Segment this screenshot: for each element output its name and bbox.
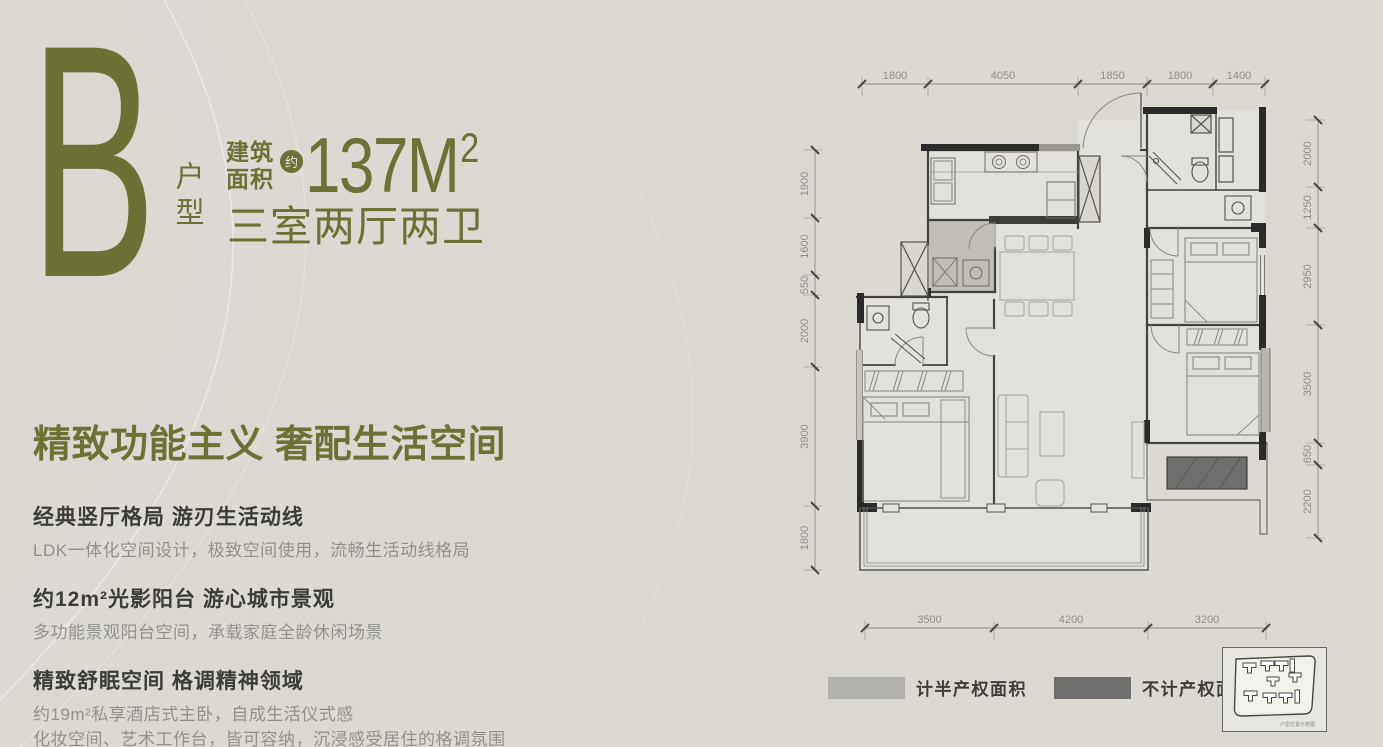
feature-description: 多功能景观阳台空间，承载家庭全龄休闲场景 <box>33 620 593 645</box>
kitchen-window-wall <box>1039 144 1080 151</box>
legend-swatch <box>828 677 905 699</box>
dimension-label: 4200 <box>1059 614 1083 626</box>
dimension-label: 3900 <box>799 424 811 448</box>
feature: 约12m²光影阳台 游心城市景观多功能景观阳台空间，承载家庭全龄休闲场景 <box>33 583 593 645</box>
unit-type-label: 户型 <box>166 161 208 233</box>
floorplan: 1800405018501800140035004200320019001600… <box>795 60 1355 660</box>
area-label-line2: 面积 <box>226 166 274 193</box>
feature: 精致舒眠空间 格调精神领域约19m²私享酒店式主卧，自成生活仪式感化妆空间、艺术… <box>33 665 593 747</box>
dimension-label: 1800 <box>799 526 811 550</box>
feature-title: 精致舒眠空间 格调精神领域 <box>33 665 593 695</box>
legend-label: 计半产权面积 <box>916 675 1027 700</box>
legend-swatch <box>1054 677 1131 699</box>
area-label: 建筑 面积 <box>226 139 274 192</box>
area-label-line1: 建筑 <box>226 139 274 166</box>
dimension-label: 1250 <box>1302 195 1314 219</box>
equipment-platform <box>1147 443 1267 534</box>
dimension-label: 1800 <box>1168 70 1192 82</box>
half-property-area <box>929 221 994 291</box>
feature-description: 约19m²私享酒店式主卧，自成生活仪式感 <box>33 702 593 727</box>
unit-letter: B <box>30 26 156 298</box>
dimension-label: 3500 <box>1302 372 1314 396</box>
dimension-label: 2200 <box>1302 489 1314 513</box>
feature: 经典竖厅格局 游刃生活动线LDK一体化空间设计，极致空间使用，流畅生活动线格局 <box>33 501 593 563</box>
rooms-desc: 三室两厅两卫 <box>227 193 485 254</box>
dimension-label: 4050 <box>991 70 1015 82</box>
dimension-label: 1850 <box>1100 70 1124 82</box>
approx-badge: 约 <box>280 150 303 173</box>
area-sup: 2 <box>460 124 478 171</box>
site-minimap: · 户型位置示意图 <box>1221 646 1328 734</box>
dimension-label: 1400 <box>1227 70 1251 82</box>
feature-description: 化妆空间、艺术工作台，皆可容纳，沉浸感受居住的格调氛围 <box>33 727 593 747</box>
feature-list: 经典竖厅格局 游刃生活动线LDK一体化空间设计，极致空间使用，流畅生活动线格局约… <box>33 501 593 747</box>
poster-page: B 户型 建筑 面积 约 137M2 三室两厅两卫 精致功能主义 奢配生活空间 … <box>0 0 1383 747</box>
dimension-label: 1800 <box>883 70 907 82</box>
dimension-label: 2000 <box>799 319 811 343</box>
minimap-caption: · 户型位置示意图 <box>1277 721 1315 728</box>
dimension-label: 1900 <box>799 172 811 196</box>
legend: 计半产权面积不计产权面积 <box>828 675 1280 700</box>
feature-title: 经典竖厅格局 游刃生活动线 <box>33 501 593 531</box>
dimension-label: 650 <box>1302 445 1314 463</box>
dimension-label: 2000 <box>1302 141 1314 165</box>
dimension-label: 3200 <box>1195 614 1219 626</box>
dimension-label: 1600 <box>799 234 811 258</box>
dimension-label: 2950 <box>1302 264 1314 288</box>
dimension-label: 3500 <box>917 614 941 626</box>
feature-title: 约12m²光影阳台 游心城市景观 <box>33 583 593 613</box>
dimension-label: 550 <box>799 276 811 294</box>
headline: 精致功能主义 奢配生活空间 <box>33 413 506 468</box>
feature-description: LDK一体化空间设计，极致空间使用，流畅生活动线格局 <box>33 538 593 563</box>
